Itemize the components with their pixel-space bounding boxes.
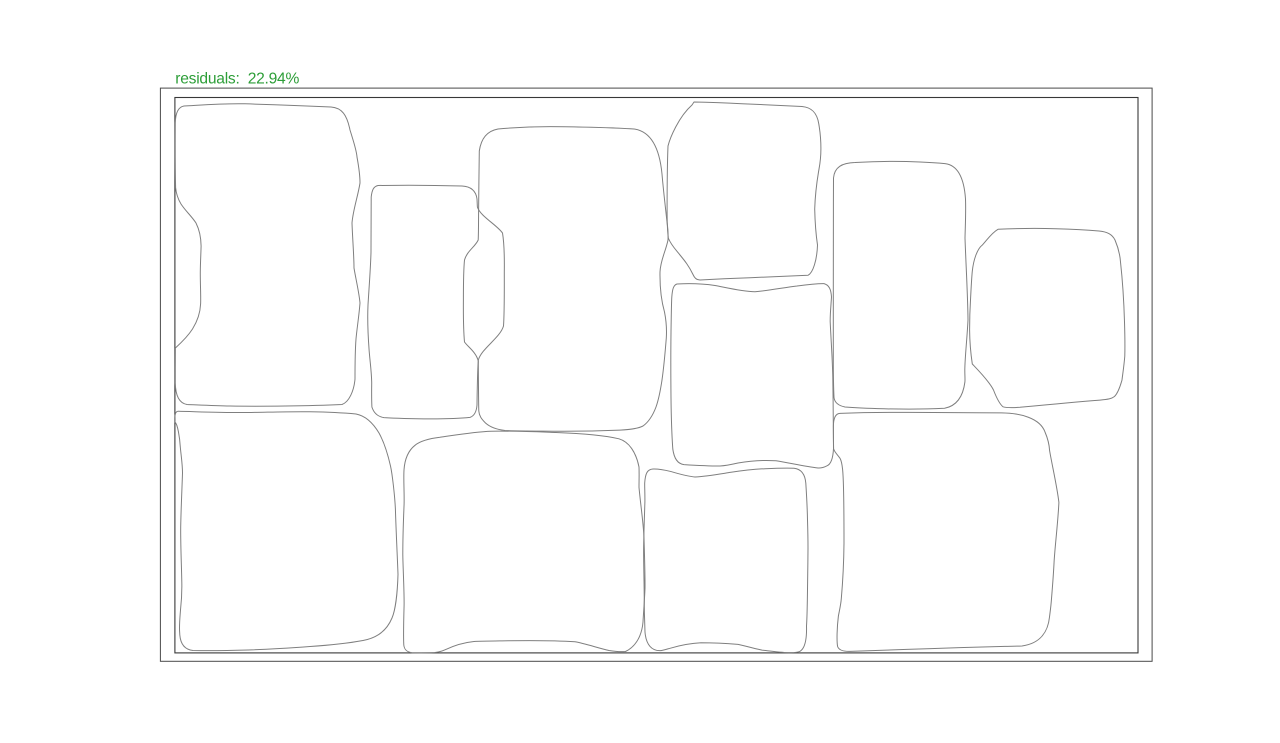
svg-text:residuals: 22.94%: residuals: 22.94% (175, 71, 299, 88)
